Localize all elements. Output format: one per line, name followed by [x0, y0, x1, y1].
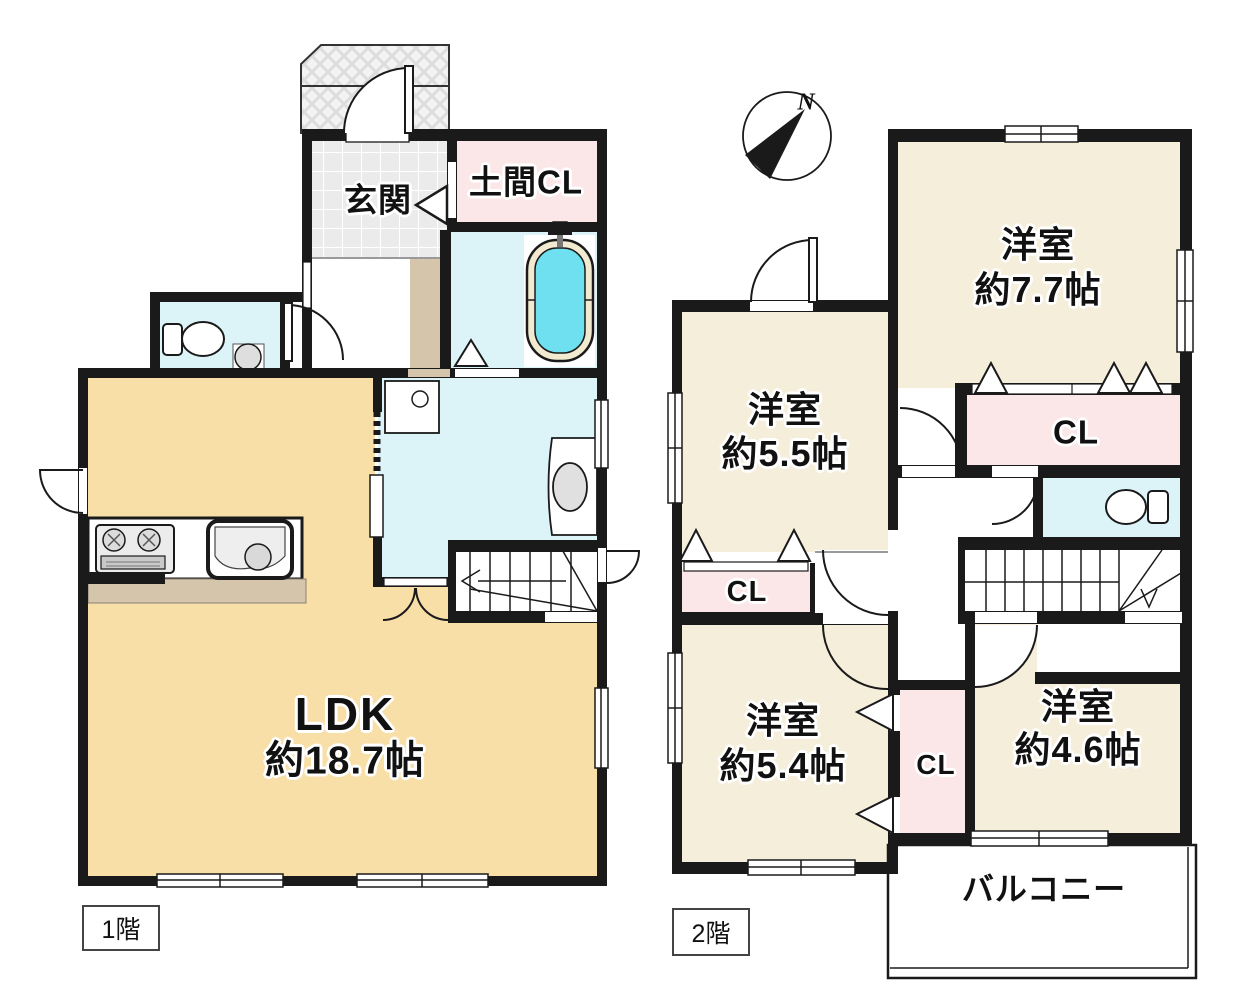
toilet1-basin: [235, 344, 261, 370]
window: [595, 400, 608, 468]
floor1-tag-text: 1階: [102, 910, 141, 946]
balcony-outline: [888, 845, 1196, 978]
window: [1177, 250, 1193, 352]
floor-plan-page: 玄関 土間CL LDK 約18.7帖 洋室 約7.7帖 CL 洋室 約5.5帖 …: [0, 0, 1252, 994]
room55-top-door: [751, 238, 817, 302]
window: [668, 393, 682, 503]
room55-floor: [682, 310, 888, 552]
window: [971, 831, 1108, 846]
washing-machine: [385, 381, 439, 433]
ldk-label: LDK: [295, 690, 396, 738]
toilet2-door: [992, 478, 1038, 524]
room55-size-label: 約5.5帖: [721, 435, 848, 473]
room54-floor: [682, 623, 888, 864]
window: [668, 653, 682, 763]
sliding-door: [370, 475, 383, 537]
floor2-tag-text: 2階: [692, 914, 731, 950]
window: [748, 860, 855, 875]
kitchen-sink: [208, 521, 292, 578]
room46-label: 洋室: [1041, 688, 1115, 726]
room46-size-label: 約4.6帖: [1014, 731, 1141, 769]
doma-closet-label: 土間CL: [469, 166, 583, 201]
ldk-side-door: [40, 470, 83, 513]
compass: [743, 92, 831, 180]
stove: [96, 525, 174, 573]
floor2-plan: [668, 92, 1196, 978]
window: [595, 688, 608, 768]
kitchen-counter: [88, 518, 306, 603]
window: [357, 874, 488, 887]
room54-size-label: 約5.4帖: [719, 747, 846, 785]
closet-center-label: CL: [916, 748, 945, 782]
window: [157, 874, 283, 887]
stairs2-floor: [963, 548, 1182, 613]
vanity-sink: [549, 438, 598, 535]
balcony-label: バルコニー: [962, 873, 1126, 907]
floor2-tag: 2階: [672, 908, 750, 956]
room77-size-label: 約7.7帖: [974, 271, 1101, 309]
floorplan-linework: [0, 0, 1252, 994]
room77-label: 洋室: [1001, 226, 1075, 264]
room55-label: 洋室: [748, 391, 822, 429]
compass-north-label: N: [797, 90, 814, 117]
ldk-size-label: 約18.7帖: [265, 742, 425, 783]
closet55-label: CL: [727, 577, 768, 607]
toilet2-fixture: [1106, 490, 1168, 524]
entrance-label: 玄関: [344, 184, 412, 219]
floor1-tag: 1階: [82, 905, 160, 951]
stair-side-door: [607, 551, 639, 583]
closet77-label: CL: [1053, 416, 1099, 451]
room54-label: 洋室: [746, 702, 820, 740]
window: [1005, 126, 1078, 142]
